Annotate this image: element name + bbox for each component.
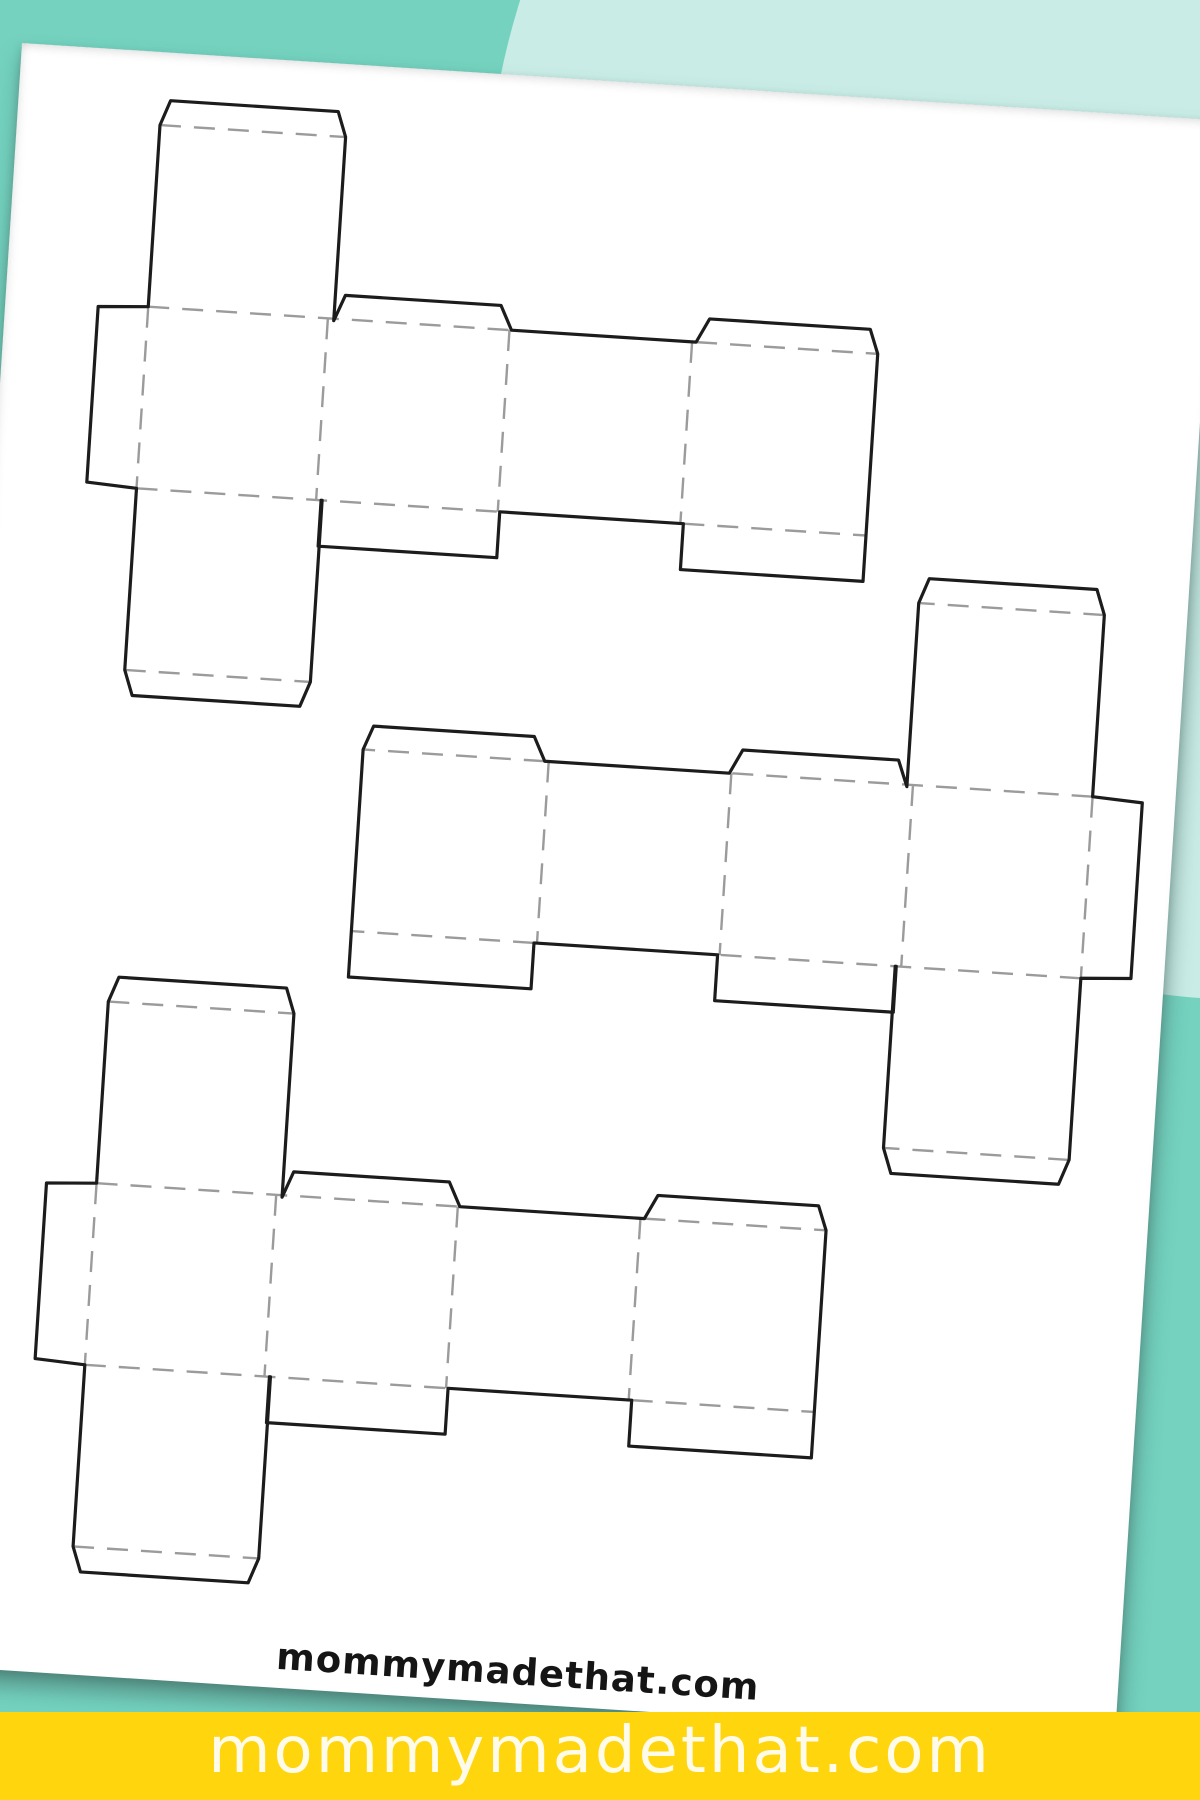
- footer-banner: mommymadethat.com: [0, 1712, 1200, 1800]
- box-templates-drawing: [0, 43, 1200, 1742]
- cut-lines: [338, 543, 1156, 1188]
- banner-site-text: mommymadethat.com: [208, 1718, 992, 1785]
- fold-lines: [125, 125, 890, 717]
- cut-lines: [73, 97, 891, 742]
- box-template-1: [73, 97, 891, 742]
- fold-lines: [340, 568, 1105, 1160]
- printable-sheet: mommymadethat.com: [0, 43, 1200, 1742]
- pinterest-graphic: mommymadethat.com mommymadethat.com: [0, 0, 1200, 1800]
- box-template-3: [22, 973, 840, 1618]
- cut-lines: [22, 973, 840, 1618]
- fold-lines: [73, 1002, 838, 1594]
- box-template-2: [338, 543, 1156, 1188]
